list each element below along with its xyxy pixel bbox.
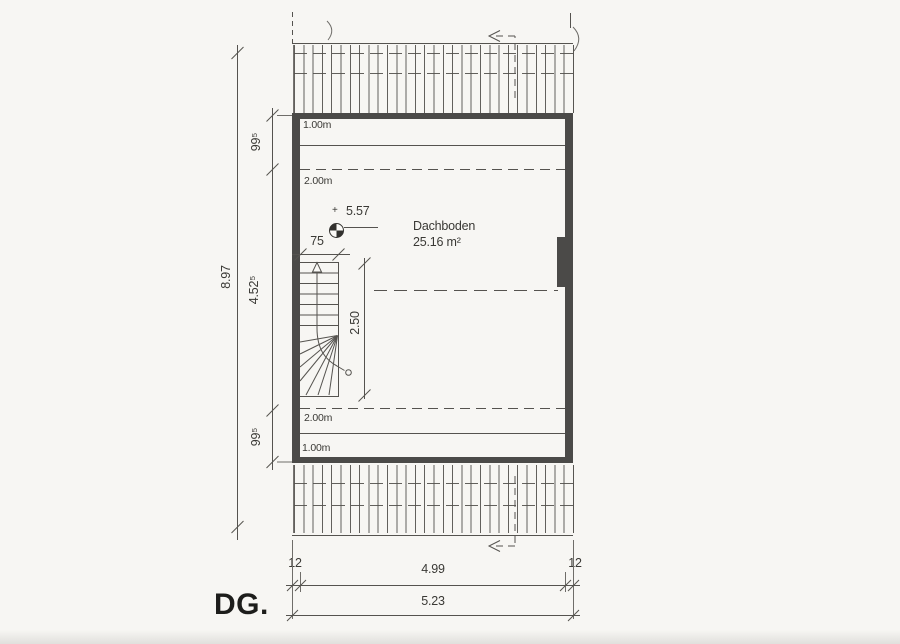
- wall-left: [292, 113, 300, 463]
- rafter-tie-line: [294, 483, 573, 484]
- chimney-pier: [557, 237, 567, 287]
- ridge-line: [374, 290, 558, 291]
- label-2m-bottom: 2.00m: [304, 412, 332, 424]
- dim-offset-bottom: 99⁵: [249, 405, 265, 469]
- level-value: 5.57: [346, 204, 370, 218]
- dim-total-height: 8.97: [219, 245, 235, 309]
- dim-line-chain: [267, 108, 293, 470]
- wall-bottom: [292, 457, 573, 463]
- level-plus-icon: +: [332, 205, 338, 216]
- headroom-line-1m-bottom: [300, 433, 565, 434]
- dim-line-stair-width: [292, 249, 350, 261]
- room-area: 25.16 m²: [413, 235, 461, 249]
- dim-wall-left: 12: [287, 556, 303, 570]
- dim-total-width: 5.23: [403, 594, 463, 608]
- headroom-line-2m-top: [300, 169, 565, 170]
- headroom-line-2m-bottom: [300, 408, 565, 409]
- dim-wall-right: 12: [567, 556, 583, 570]
- dim-inner-width: 4.99: [403, 562, 463, 576]
- dim-stair-run: 2.50: [348, 291, 364, 355]
- roof-bottom-edge: [292, 535, 573, 536]
- wall-top: [292, 113, 573, 119]
- label-2m-top: 2.00m: [304, 175, 332, 187]
- rafter-tie-line: [294, 73, 573, 74]
- label-1m-bottom: 1.00m: [302, 442, 330, 454]
- downpipe-top-left-icon: [327, 21, 332, 40]
- dim-middle-span: 4.52⁵: [247, 258, 263, 322]
- wall-right: [565, 113, 573, 463]
- headroom-line-1m-top: [300, 145, 565, 146]
- roof-hatch-top: [293, 45, 574, 113]
- staircase: [300, 262, 339, 397]
- room-name: Dachboden: [413, 219, 475, 233]
- rafter-tie-line: [294, 53, 573, 54]
- rafter-tie-line: [294, 505, 573, 506]
- dim-offset-top: 99⁵: [249, 110, 265, 174]
- dim-lines-bottom: [286, 540, 580, 621]
- roof-hatch-bottom: [293, 465, 574, 533]
- level-underline: [344, 227, 378, 228]
- floor-label: DG.: [214, 588, 269, 622]
- level-marker-icon: [329, 223, 344, 238]
- dim-stair-width: 75: [306, 234, 328, 248]
- label-1m-top: 1.00m: [303, 119, 331, 131]
- floor-plan-page: + 5.57 Dachboden 25.16 m² 1.00m 2.00m 2.…: [0, 0, 900, 644]
- roof-top-edge: [292, 43, 573, 44]
